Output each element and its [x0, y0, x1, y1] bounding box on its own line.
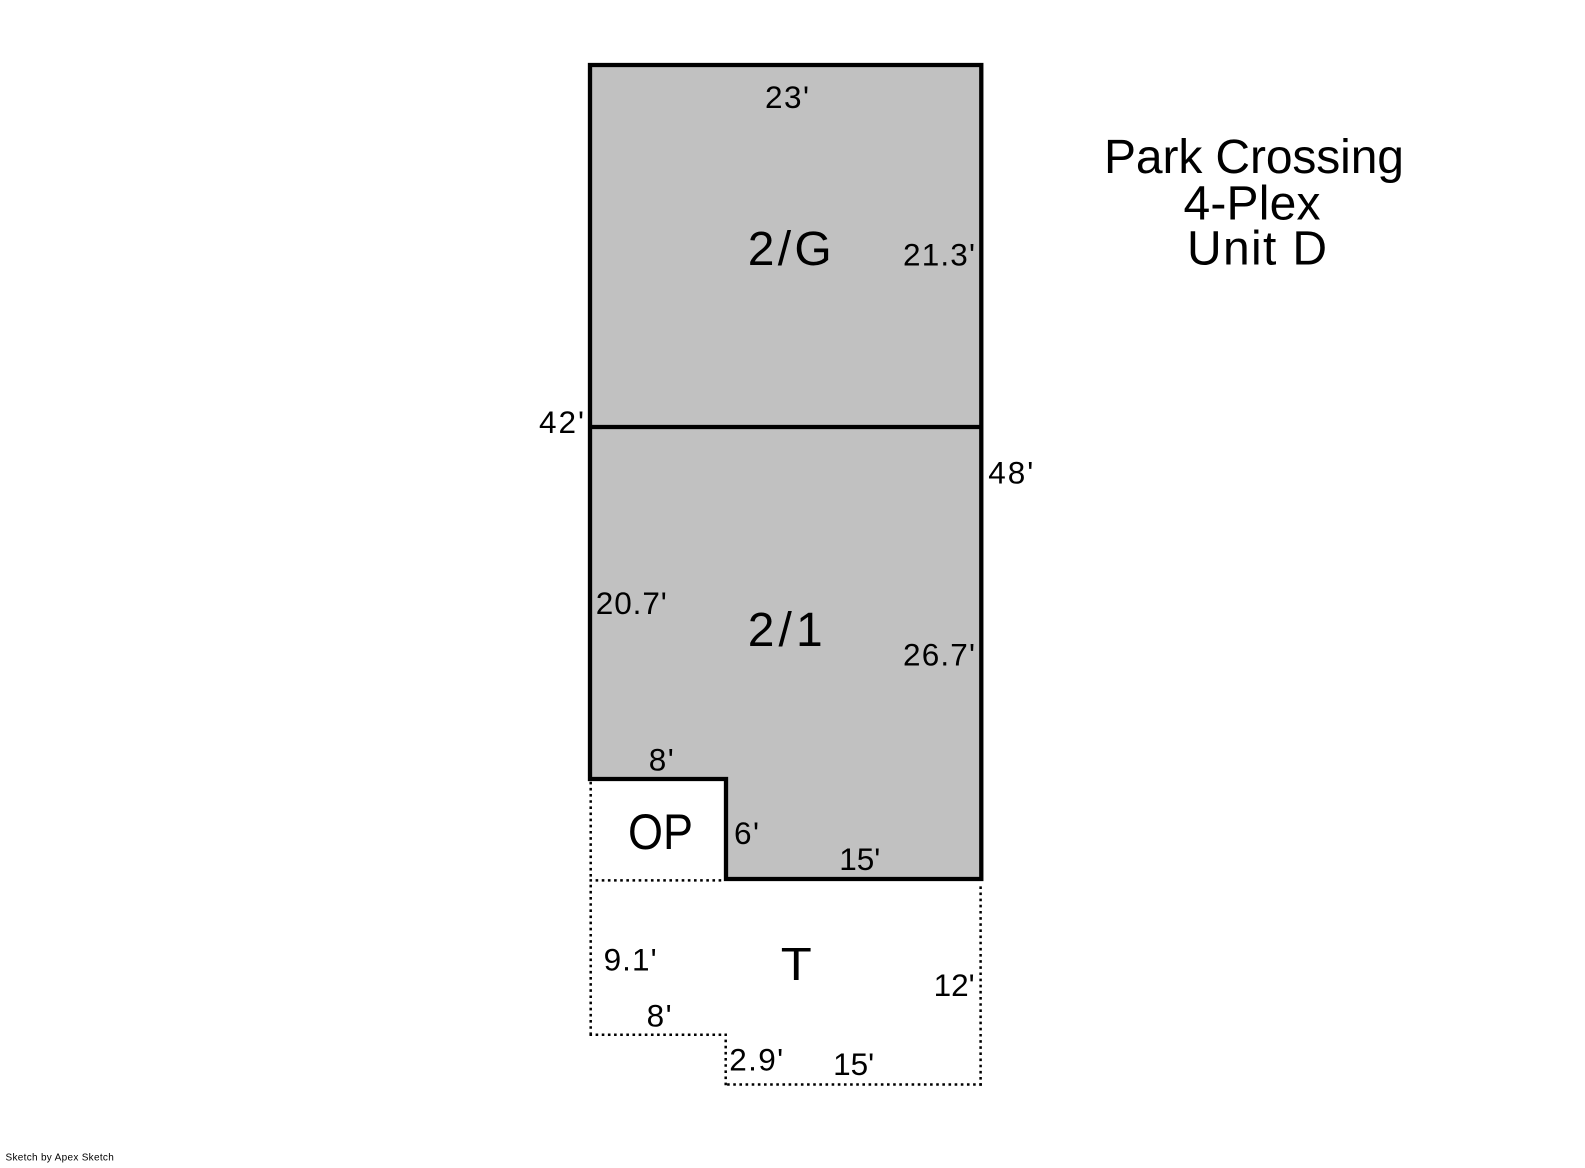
svg-text:26.7': 26.7': [903, 637, 975, 673]
svg-text:15': 15': [833, 1046, 874, 1082]
svg-text:20.7': 20.7': [596, 585, 667, 621]
svg-text:2.9': 2.9': [729, 1042, 783, 1078]
svg-text:42': 42': [539, 404, 584, 440]
svg-text:OP: OP: [628, 804, 693, 860]
svg-text:2/G: 2/G: [748, 223, 832, 276]
svg-text:23': 23': [765, 79, 809, 115]
svg-text:12': 12': [934, 967, 975, 1003]
svg-text:15': 15': [839, 841, 880, 877]
svg-text:8': 8': [649, 741, 674, 777]
svg-text:8': 8': [647, 997, 672, 1033]
svg-text:Park Crossing: Park Crossing: [1104, 131, 1404, 184]
svg-text:9.1': 9.1': [604, 942, 657, 978]
svg-text:Sketch by Apex Sketch: Sketch by Apex Sketch: [6, 1153, 115, 1164]
svg-text:48': 48': [988, 455, 1033, 491]
svg-text:2/1: 2/1: [748, 604, 823, 657]
svg-text:21.3': 21.3': [903, 236, 975, 272]
svg-text:Unit D: Unit D: [1187, 223, 1327, 276]
svg-text:6': 6': [734, 815, 759, 851]
svg-text:T: T: [781, 938, 812, 990]
